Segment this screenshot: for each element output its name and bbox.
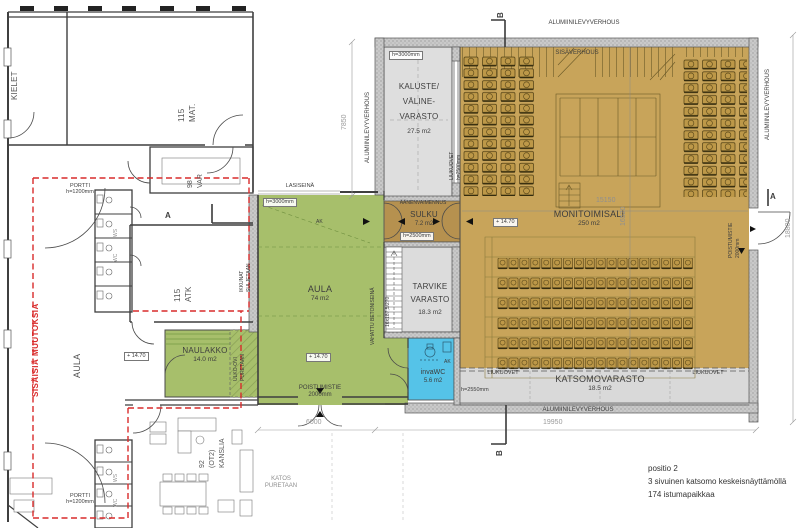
room-label-kanslia: 92(OT2)KANSLIA xyxy=(198,438,228,468)
portti-top-label: PORTTIh=1200mm xyxy=(66,183,94,196)
dim-19950: 19950 xyxy=(543,419,562,427)
invawc-ak-label: AK xyxy=(444,360,451,366)
sound-dampening-label: ÄÄNENVAIMENNUS xyxy=(400,201,447,207)
note-positio: positio 2 xyxy=(648,464,678,473)
kaluste-sliding-door-label: LIUKUOVETh=2500mm xyxy=(449,152,463,180)
interior-cladding-label: SISÄVERHOUS xyxy=(555,50,598,57)
wc-label-wc-top: WC xyxy=(114,254,120,262)
section-marker-b-top: B xyxy=(496,12,505,18)
hall-exit-label: POISTUMISTIE2000mm xyxy=(728,223,742,258)
note-seats: 174 istumapaikkaa xyxy=(648,490,715,499)
room-label-katsomovarasto: KATSOMOVARASTO18.5 m2 xyxy=(555,374,644,393)
cladding-label-top: ALUMIINILEVYVERHOUS xyxy=(548,20,619,27)
room-label-aula-new: AULA74 m2 xyxy=(308,284,332,303)
wc-block-top xyxy=(95,190,132,312)
level-marker-aula: + 14.70 xyxy=(306,353,331,362)
room-label-sulku: SULKU7.2 m2 xyxy=(410,210,438,228)
dim-6000: 6000 xyxy=(306,419,322,427)
cladding-label-right: ALUMIINILEVYVERHOUS xyxy=(765,69,772,140)
hall-seating-left xyxy=(462,55,536,196)
hall-seating-bottom xyxy=(485,237,695,378)
dim-16520: 16520 xyxy=(620,207,628,226)
plan-notes: positio 2 3 sivuinen katsomo keskeisnäyt… xyxy=(648,462,786,502)
dim-18800: 18800 xyxy=(785,219,793,238)
wc-block-bottom xyxy=(95,440,132,528)
room-label-invawc: invaWC5.6 m2 xyxy=(421,369,446,385)
room-label-kaluste: KALUSTE/ VÄLINE- VARASTO 27.5 m2 xyxy=(399,80,439,139)
room-label-var: 98VAR xyxy=(186,174,206,188)
vahattu-note: VAHATTU BETONISEINÄ xyxy=(371,287,377,345)
level-marker-hall: + 14.70 xyxy=(493,218,518,227)
level-marker-naulakko: + 14.70 xyxy=(124,352,149,361)
room-label-monitoimisali: MONITOIMISALI250 m2 xyxy=(554,209,624,228)
room-label-tarvike: TARVIKE VARASTO 18.3 m2 xyxy=(411,281,450,319)
cladding-label-left: ALUMIINILEVYVERHOUS xyxy=(365,92,372,163)
lasiseina-label: LASISEINÄ xyxy=(286,183,314,189)
katsomo-height-label: h=2550mm xyxy=(461,387,489,393)
note-katsomo: 3 sivuinen katsomo keskeisnäyttämöllä xyxy=(648,477,786,486)
aula-ak-label: AK xyxy=(316,220,323,226)
section-marker-b-bottom: B xyxy=(495,450,504,456)
dim-15150: 15150 xyxy=(596,197,615,205)
sliding-door-label-right: LIUKUOVET xyxy=(692,370,723,376)
dim-7850: 7850 xyxy=(341,114,349,130)
wc-label-ws-top: WS xyxy=(114,229,120,237)
section-marker-a-left: A xyxy=(165,211,171,220)
ulko-ovi-note: ULKO-OVIPURETAAN xyxy=(233,354,247,381)
room-label-naulakko: NAULAKKO14.0 m2 xyxy=(182,346,227,364)
ikkunat-note: IKKUNATSULJETAAN xyxy=(239,263,253,292)
room-label-mat: 115MAT. xyxy=(176,104,198,122)
sulku-height-label: h=2500mm xyxy=(400,232,434,241)
wc-label-wc-bottom: WC xyxy=(114,499,120,507)
kaluste-height-label: h=3000mm xyxy=(389,51,423,60)
aula-height-label: h=3000mm xyxy=(263,198,297,207)
stair-spec-label: 16x187,5/270 xyxy=(386,297,392,327)
cladding-label-bottom: ALUMIINILEVYVERHOUS xyxy=(542,407,613,414)
floor-plan: KIELET 115MAT. 98VAR 115ATK AULA SISÄISI… xyxy=(0,0,811,528)
room-label-aula-old: AULA xyxy=(72,354,82,378)
room-label-atk: 115ATK xyxy=(172,286,194,302)
wc-label-ws-bottom: WS xyxy=(114,474,120,482)
room-label-kielet: KIELET xyxy=(10,71,19,100)
sliding-door-label-left: LIUKUOVET xyxy=(487,370,518,376)
hall-seating-right xyxy=(682,58,747,197)
katos-note: KATOSPURETAAN xyxy=(265,476,297,490)
aula-exit-label: POISTUMISTIE2000mm xyxy=(299,385,341,399)
revision-note: SISÄISIÄ MUUTOKSIA xyxy=(31,303,40,397)
section-marker-a-right: A xyxy=(770,192,776,201)
portti-bottom-label: PORTTIh=1200mm xyxy=(66,493,94,506)
